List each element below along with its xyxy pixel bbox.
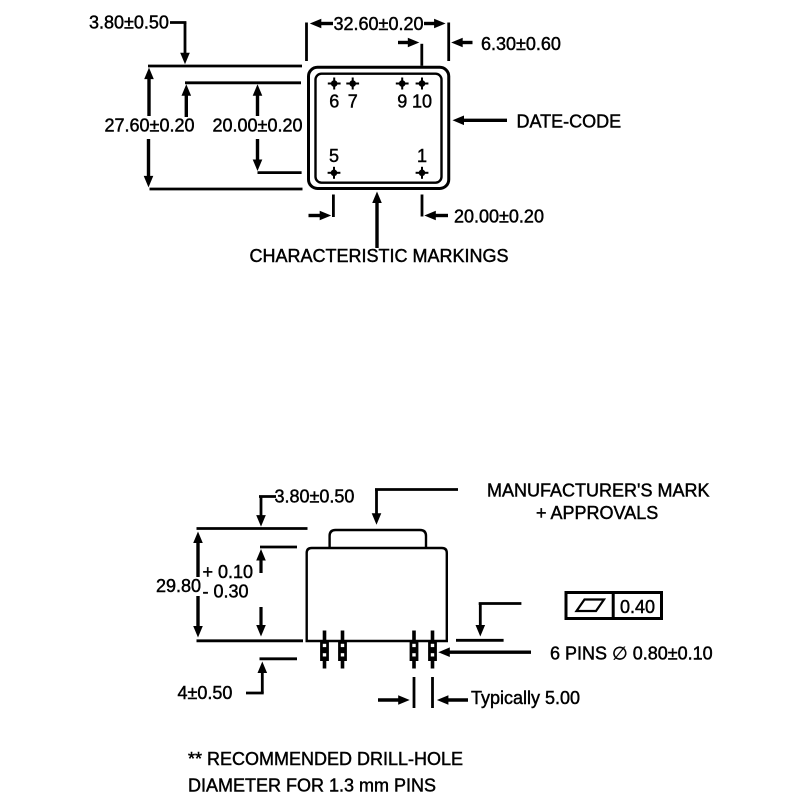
svg-text:29.80: 29.80: [156, 576, 201, 596]
svg-text:20.00±0.20: 20.00±0.20: [213, 116, 303, 136]
svg-text:0.40: 0.40: [620, 597, 655, 617]
svg-text:6.30±0.60: 6.30±0.60: [481, 34, 561, 54]
svg-text:32.60±0.20: 32.60±0.20: [334, 14, 424, 34]
svg-text:3.80±0.50: 3.80±0.50: [275, 487, 355, 507]
svg-text:4±0.50: 4±0.50: [178, 683, 233, 703]
svg-text:Typically 5.00: Typically 5.00: [471, 688, 580, 708]
svg-text:+ 0.10: + 0.10: [203, 562, 254, 582]
svg-text:9: 9: [397, 92, 407, 112]
svg-text:CHARACTERISTIC MARKINGS: CHARACTERISTIC MARKINGS: [249, 246, 508, 266]
svg-text:5: 5: [329, 146, 339, 166]
svg-text:7: 7: [348, 92, 358, 112]
svg-text:6: 6: [329, 92, 339, 112]
svg-text:20.00±0.20: 20.00±0.20: [454, 206, 544, 226]
svg-text:+ APPROVALS: + APPROVALS: [536, 503, 658, 523]
svg-text:27.60±0.20: 27.60±0.20: [105, 116, 195, 136]
svg-text:- 0.30: - 0.30: [203, 582, 249, 602]
svg-text:6 PINS ∅ 0.80±0.10: 6 PINS ∅ 0.80±0.10: [550, 644, 713, 664]
svg-text:MANUFACTURER'S MARK: MANUFACTURER'S MARK: [487, 481, 709, 501]
svg-text:DIAMETER FOR 1.3 mm PINS: DIAMETER FOR 1.3 mm PINS: [188, 776, 436, 796]
svg-text:** RECOMMENDED DRILL-HOLE: ** RECOMMENDED DRILL-HOLE: [188, 749, 463, 769]
svg-text:3.80±0.50: 3.80±0.50: [89, 13, 169, 33]
svg-text:1: 1: [417, 146, 427, 166]
svg-text:10: 10: [412, 92, 432, 112]
svg-text:DATE-CODE: DATE-CODE: [517, 111, 622, 131]
